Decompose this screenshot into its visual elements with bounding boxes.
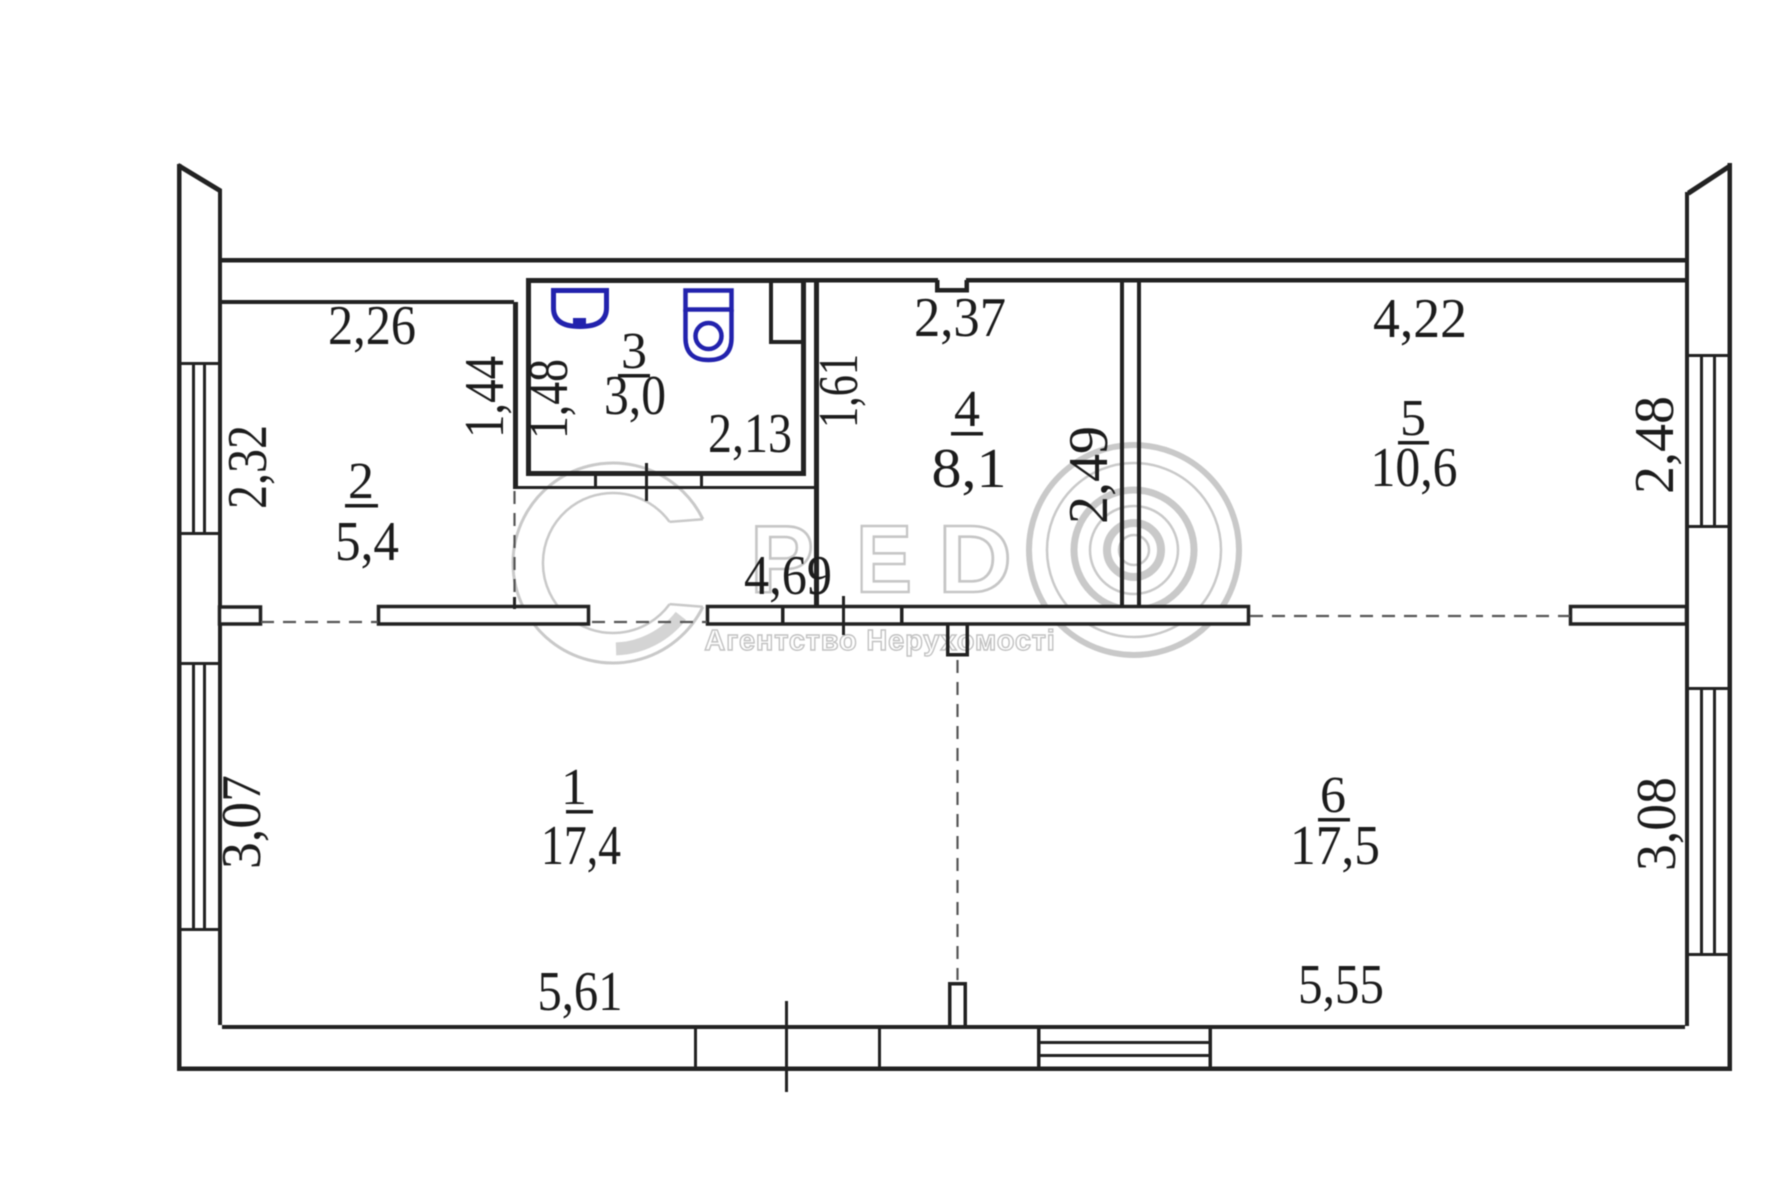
svg-text:8,1: 8,1 — [932, 438, 1007, 500]
svg-text:3,0: 3,0 — [604, 365, 666, 427]
svg-text:2: 2 — [348, 453, 374, 510]
svg-text:4: 4 — [954, 381, 980, 438]
svg-text:D: D — [938, 506, 1012, 613]
svg-text:5,55: 5,55 — [1298, 954, 1384, 1016]
svg-text:4,69: 4,69 — [744, 545, 832, 607]
svg-text:5,61: 5,61 — [538, 961, 623, 1023]
svg-text:4,22: 4,22 — [1373, 288, 1467, 350]
svg-text:2,26: 2,26 — [328, 295, 416, 357]
svg-text:2,48: 2,48 — [1624, 396, 1686, 494]
svg-text:10,6: 10,6 — [1371, 437, 1458, 499]
svg-text:17,5: 17,5 — [1290, 815, 1380, 877]
svg-text:2,32: 2,32 — [217, 425, 279, 509]
svg-text:2,49: 2,49 — [1058, 426, 1120, 524]
svg-text:3,08: 3,08 — [1626, 777, 1688, 871]
svg-text:17,4: 17,4 — [541, 815, 621, 877]
svg-text:3,07: 3,07 — [211, 775, 273, 869]
svg-text:1,44: 1,44 — [454, 356, 516, 438]
svg-text:1,48: 1,48 — [518, 359, 580, 439]
svg-text:Е: Е — [856, 506, 912, 613]
svg-text:5,4: 5,4 — [335, 511, 399, 573]
svg-text:2,37: 2,37 — [914, 287, 1006, 349]
svg-text:1,61: 1,61 — [808, 354, 870, 428]
svg-text:Агентство Нерухомості: Агентство Нерухомості — [704, 625, 1055, 657]
svg-text:1: 1 — [561, 759, 587, 816]
svg-text:2,13: 2,13 — [708, 403, 792, 465]
